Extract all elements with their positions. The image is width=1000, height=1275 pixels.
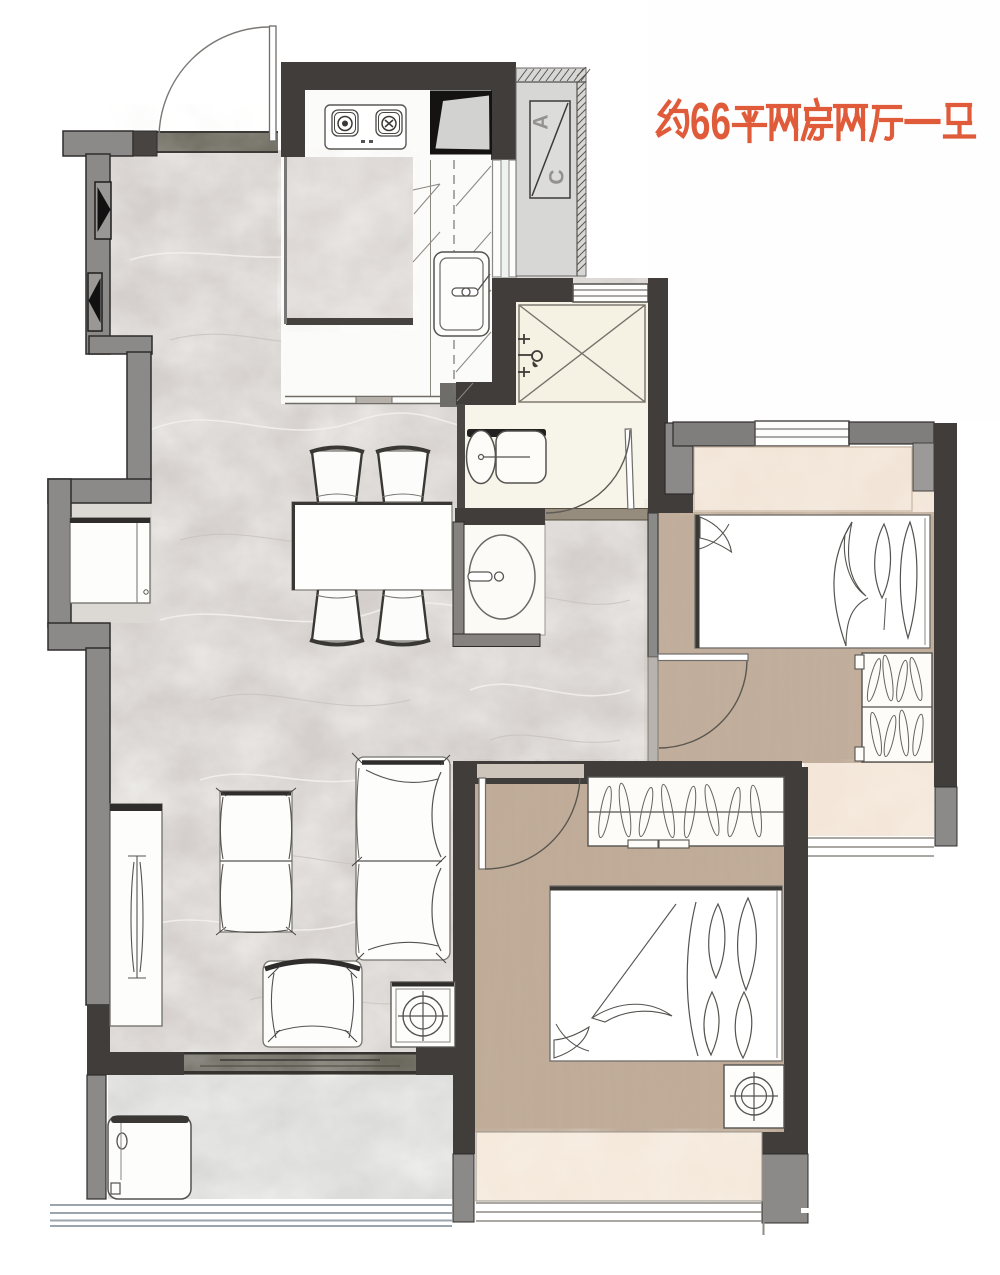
- svg-text:66: 66: [690, 92, 731, 150]
- svg-text:A: A: [530, 114, 553, 129]
- svg-text:C: C: [546, 169, 569, 184]
